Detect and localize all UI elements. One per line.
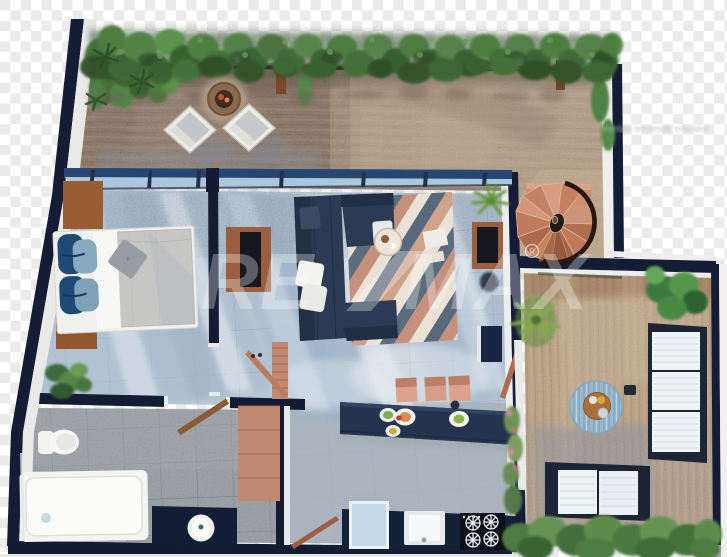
svg-text:MAX: MAX (404, 237, 592, 326)
svg-text:R: R (529, 248, 535, 257)
svg-text:rentas terrenos mls-alor: rentas terrenos mls-alor (604, 124, 710, 135)
svg-text:RE: RE (201, 237, 316, 326)
